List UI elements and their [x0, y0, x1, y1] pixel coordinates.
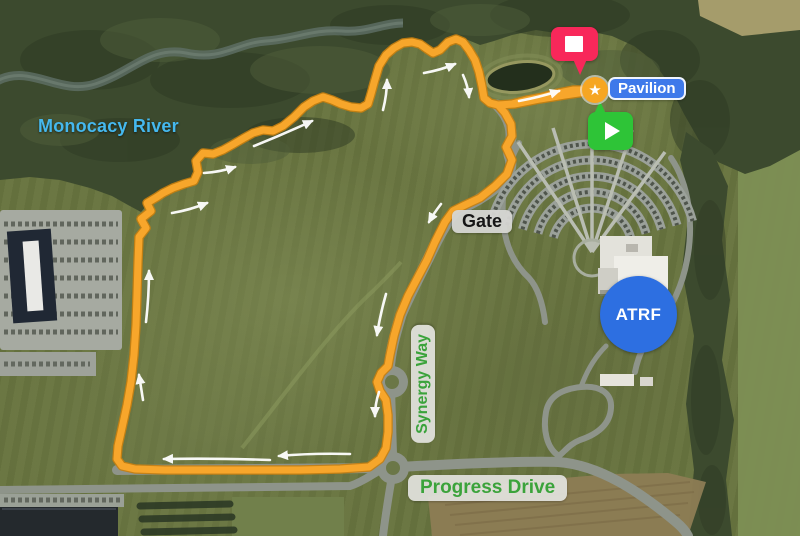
direction-arrow [424, 64, 455, 73]
field-track [242, 262, 401, 448]
waypoint-star-pin[interactable]: ★ [582, 77, 608, 103]
direction-arrow [375, 392, 379, 416]
direction-arrow [463, 75, 469, 97]
direction-arrow [164, 459, 270, 460]
direction-arrow [279, 454, 350, 456]
finish-marker-pin[interactable] [551, 27, 598, 61]
southwest-buildings [0, 494, 234, 536]
direction-arrow [172, 203, 207, 213]
gate-label: Gate [452, 210, 512, 233]
stop-icon [565, 36, 583, 52]
progress-drive-road-label: Progress Drive [408, 475, 567, 501]
river-label: Monocacy River [38, 116, 179, 137]
west-parking-lot [0, 210, 122, 376]
west-office-building [7, 229, 57, 324]
play-icon [605, 122, 620, 140]
direction-arrow [383, 80, 387, 110]
synergy-way-road-label: Synergy Way [411, 325, 435, 443]
pavilion-label: Pavilion [608, 77, 686, 100]
course-map: Monocacy River Pavilion Gate Synergy Way… [0, 0, 800, 536]
direction-arrow [377, 294, 386, 335]
start-marker-pin[interactable] [588, 112, 633, 150]
direction-arrow [146, 271, 149, 322]
direction-arrow [139, 375, 143, 400]
loop-road-buildings [600, 374, 653, 386]
star-icon: ★ [588, 83, 601, 98]
direction-arrow [429, 204, 441, 222]
atrf-badge: ATRF [600, 276, 677, 353]
direction-arrow [204, 167, 235, 173]
